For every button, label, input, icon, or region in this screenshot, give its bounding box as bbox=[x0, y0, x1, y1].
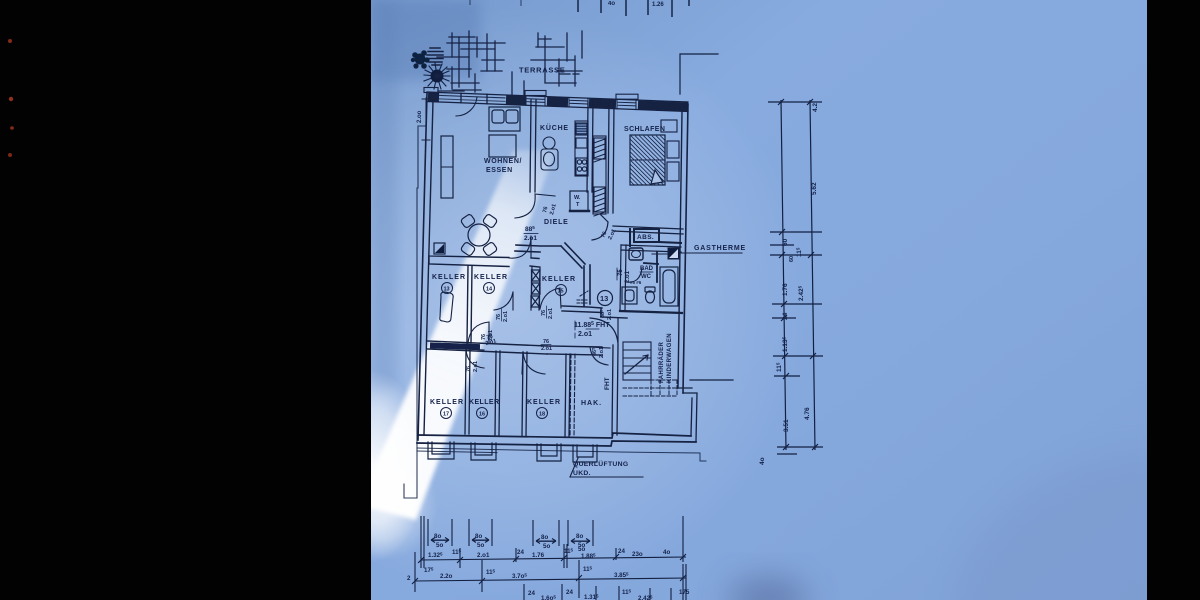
svg-text:2.o1: 2.o1 bbox=[607, 309, 613, 320]
svg-text:2.o1: 2.o1 bbox=[524, 235, 537, 242]
svg-text:KELLER: KELLER bbox=[527, 399, 561, 406]
svg-text:5o: 5o bbox=[477, 542, 484, 549]
svg-text:KÜCHE: KÜCHE bbox=[540, 123, 569, 132]
svg-text:17: 17 bbox=[443, 412, 449, 418]
svg-text:24: 24 bbox=[782, 312, 789, 320]
svg-text:76: 76 bbox=[496, 314, 502, 320]
svg-text:2.o1: 2.o1 bbox=[599, 347, 605, 358]
svg-text:2.o1: 2.o1 bbox=[625, 270, 631, 283]
svg-text:5o: 5o bbox=[543, 543, 550, 550]
svg-text:76: 76 bbox=[543, 339, 549, 345]
svg-text:23o: 23o bbox=[632, 551, 643, 558]
svg-text:2.o1: 2.o1 bbox=[503, 311, 509, 322]
svg-text:2.oo: 2.oo bbox=[417, 110, 423, 123]
svg-text:2.o1: 2.o1 bbox=[477, 552, 490, 559]
svg-text:8o: 8o bbox=[541, 534, 548, 541]
svg-text:SCHLAFEN: SCHLAFEN bbox=[624, 126, 665, 133]
svg-text:8o: 8o bbox=[475, 533, 482, 540]
svg-text:8o: 8o bbox=[434, 533, 441, 540]
svg-text:GASTHERME: GASTHERME bbox=[694, 245, 746, 252]
svg-text:4o: 4o bbox=[663, 549, 670, 556]
svg-text:2.o1: 2.o1 bbox=[473, 361, 479, 372]
svg-text:WC: WC bbox=[641, 274, 652, 280]
svg-text:76: 76 bbox=[466, 366, 472, 372]
svg-text:KELLER: KELLER bbox=[432, 274, 466, 281]
svg-text:KELLER: KELLER bbox=[430, 399, 464, 406]
svg-text:5o: 5o bbox=[578, 546, 585, 553]
svg-text:QUERLÜFTUNG: QUERLÜFTUNG bbox=[573, 459, 628, 468]
svg-text:60: 60 bbox=[789, 256, 795, 262]
svg-text:KINDERWAGEN: KINDERWAGEN bbox=[667, 333, 673, 383]
svg-text:HAK.: HAK. bbox=[581, 400, 602, 407]
svg-text:4o: 4o bbox=[608, 1, 615, 7]
svg-text:1.26: 1.26 bbox=[652, 2, 664, 8]
svg-text:TERRASSE: TERRASSE bbox=[519, 66, 565, 75]
svg-text:15: 15 bbox=[558, 289, 564, 295]
svg-text:ABS.: ABS. bbox=[637, 234, 654, 241]
svg-text:18: 18 bbox=[539, 412, 545, 418]
svg-text:13: 13 bbox=[600, 294, 608, 303]
svg-text:2.425: 2.425 bbox=[638, 595, 653, 600]
svg-text:KELLER: KELLER bbox=[542, 276, 576, 283]
svg-text:4.2: 4.2 bbox=[812, 103, 819, 112]
svg-text:WOHNEN/: WOHNEN/ bbox=[484, 158, 522, 165]
svg-text:1.76: 1.76 bbox=[782, 283, 789, 296]
svg-text:KELLER: KELLER bbox=[474, 274, 508, 281]
svg-text:60: 60 bbox=[782, 238, 789, 246]
svg-text:24: 24 bbox=[528, 590, 535, 597]
svg-text:2.o1: 2.o1 bbox=[548, 308, 554, 319]
svg-text:14: 14 bbox=[486, 287, 493, 293]
svg-text:2: 2 bbox=[407, 575, 411, 582]
svg-text:FAHRRÄDER: FAHRRÄDER bbox=[658, 341, 665, 383]
svg-text:24: 24 bbox=[618, 548, 625, 555]
svg-text:UKD.: UKD. bbox=[573, 470, 591, 477]
svg-text:5o: 5o bbox=[436, 542, 443, 549]
svg-text:76: 76 bbox=[541, 310, 547, 316]
svg-text:1.6o5: 1.6o5 bbox=[541, 595, 556, 600]
svg-text:8o: 8o bbox=[576, 533, 583, 540]
svg-text:24: 24 bbox=[566, 589, 573, 596]
svg-text:1.76: 1.76 bbox=[532, 552, 545, 559]
svg-text:175: 175 bbox=[679, 589, 690, 596]
svg-text:FHT: FHT bbox=[604, 377, 611, 390]
svg-text:4.76: 4.76 bbox=[804, 407, 811, 420]
svg-text:24: 24 bbox=[517, 549, 524, 556]
svg-text:75: 75 bbox=[618, 269, 624, 276]
svg-text:KELLER: KELLER bbox=[469, 399, 499, 406]
svg-text:5.62: 5.62 bbox=[811, 182, 818, 195]
svg-text:2.2o: 2.2o bbox=[440, 573, 453, 580]
svg-text:2.o1: 2.o1 bbox=[578, 331, 592, 338]
svg-text:W.: W. bbox=[574, 195, 581, 201]
svg-text:16: 16 bbox=[479, 412, 485, 418]
svg-text:3.51: 3.51 bbox=[783, 419, 790, 432]
svg-text:ESSEN: ESSEN bbox=[486, 167, 513, 174]
svg-text:4o: 4o bbox=[759, 457, 766, 465]
svg-text:DIELE: DIELE bbox=[544, 219, 569, 226]
svg-text:2.o1: 2.o1 bbox=[541, 346, 552, 352]
